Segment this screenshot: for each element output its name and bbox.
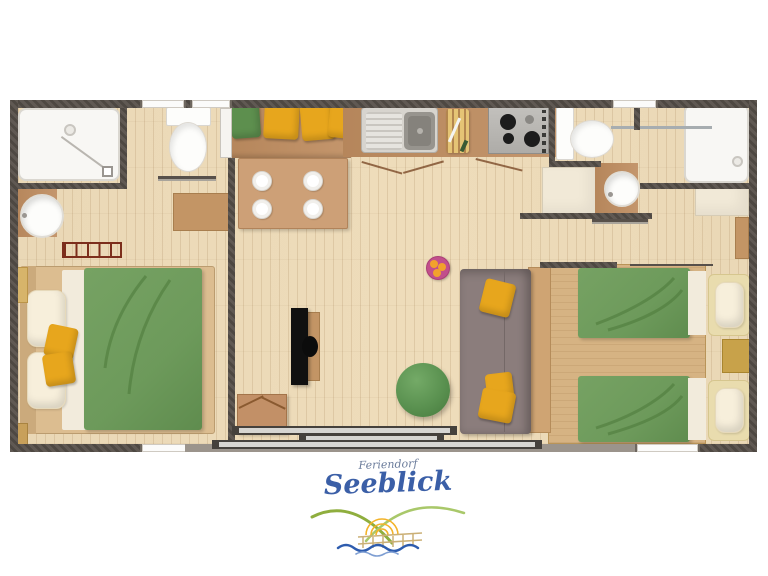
- console-shelf: [528, 267, 551, 433]
- outer-wall-left: [10, 100, 18, 452]
- nightstand: [722, 339, 750, 373]
- shower-valve-icon: [102, 166, 113, 177]
- interior-wall: [120, 100, 127, 189]
- twin-bed-mattress: [578, 376, 690, 442]
- interior-wall: [549, 100, 555, 165]
- window: [140, 100, 186, 108]
- pillow-box: [708, 380, 750, 441]
- plate: [303, 199, 323, 219]
- bed-sheet: [688, 378, 706, 440]
- stove: [488, 107, 549, 154]
- cabinet: [695, 186, 749, 216]
- door-leaf: [220, 108, 232, 158]
- burner: [503, 133, 514, 144]
- wardrobe: [735, 217, 749, 259]
- bed-sheet: [688, 271, 706, 335]
- interior-wall: [228, 158, 235, 444]
- patio-door-panel: [299, 434, 444, 442]
- burner: [525, 115, 534, 124]
- drain-icon: [732, 156, 743, 167]
- shower-tray-left: [18, 108, 120, 181]
- faucet-icon: [22, 213, 27, 218]
- duvet: [84, 268, 202, 430]
- plate: [303, 171, 323, 191]
- plate: [252, 199, 272, 219]
- sofa-cushion: [477, 387, 516, 424]
- interior-wall: [549, 161, 601, 167]
- burner: [500, 114, 516, 130]
- window: [611, 100, 658, 108]
- burner: [524, 131, 540, 147]
- cabinet: [542, 167, 597, 215]
- brand-logo: Feriendorf Seeblick: [296, 458, 480, 562]
- shower-tray-right: [684, 104, 749, 183]
- brand-name: Seeblick: [296, 468, 481, 500]
- toilet-bowl: [570, 120, 614, 158]
- shower-glass: [611, 126, 712, 129]
- toilet-bowl: [169, 122, 207, 172]
- sink-basin: [404, 112, 435, 150]
- seat-cushion-green: [230, 103, 261, 139]
- washbasin: [604, 171, 640, 207]
- wardrobe: [173, 193, 230, 231]
- interior-wall: [640, 183, 749, 189]
- floor-plan: [10, 100, 757, 452]
- plate: [252, 171, 272, 191]
- drain-icon: [64, 124, 76, 136]
- pillow-box: [708, 274, 750, 336]
- radiator: [62, 242, 122, 258]
- pouf: [396, 363, 450, 417]
- window: [190, 100, 232, 108]
- window: [635, 444, 700, 452]
- drain-icon: [417, 128, 423, 134]
- sliding-door: [158, 176, 216, 179]
- brand-graphic-icon: [308, 497, 468, 557]
- sliding-door: [592, 219, 648, 222]
- accent-pillow: [42, 351, 77, 387]
- twin-bed-mattress: [578, 268, 690, 338]
- low-partition: [630, 264, 713, 266]
- interior-wall: [540, 262, 617, 268]
- outer-wall-right: [749, 100, 757, 452]
- faucet-icon: [608, 192, 613, 197]
- drainboard: [366, 112, 402, 150]
- sink-unit: [361, 107, 438, 153]
- interior-wall: [10, 183, 127, 189]
- tv-speaker-icon: [302, 336, 318, 357]
- dining-table: [238, 158, 348, 229]
- control-knobs: [542, 110, 546, 153]
- fruit-bowl: [426, 256, 450, 280]
